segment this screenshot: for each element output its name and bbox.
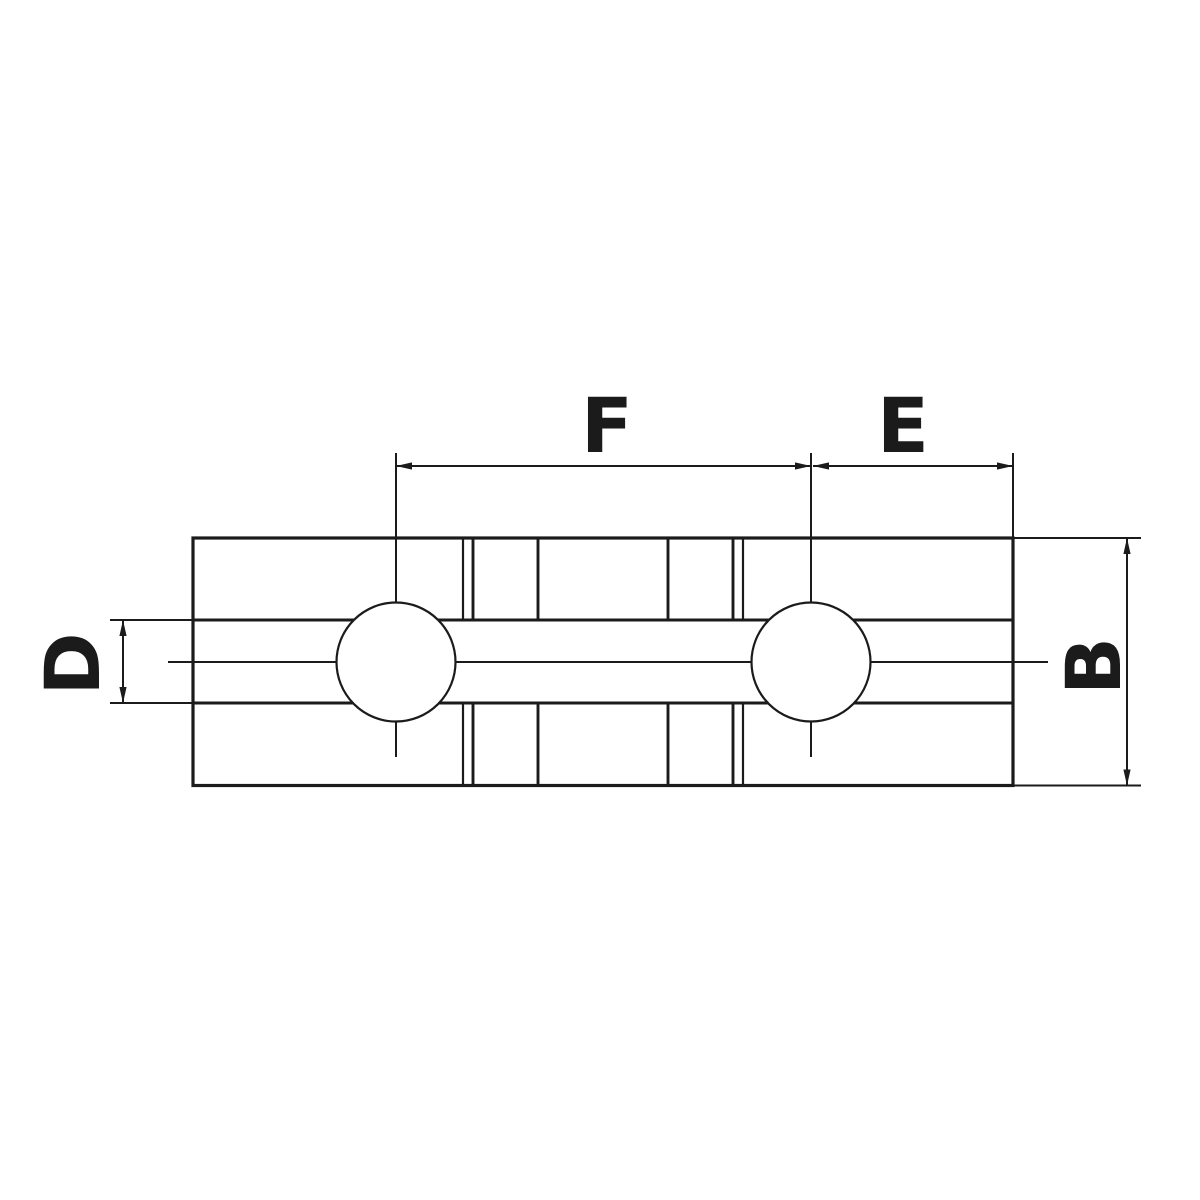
arrowhead-down-icon	[1123, 770, 1130, 786]
arrowhead-up-icon	[1123, 538, 1130, 554]
arrowhead-up-icon	[119, 620, 126, 636]
right-mounting-hole	[752, 603, 871, 722]
arrowhead-right-icon	[997, 462, 1013, 469]
dim-label-b: B	[1049, 637, 1138, 695]
centerlines	[168, 453, 1048, 757]
arrowhead-left-icon	[813, 462, 829, 469]
arrowhead-right-icon	[795, 462, 811, 469]
dim-label-d: D	[28, 632, 117, 695]
soft-jaw-technical-drawing: F E D B	[0, 0, 1200, 1200]
drawing-canvas: F E D B	[0, 0, 1200, 1200]
arrowhead-left-icon	[396, 462, 412, 469]
arrowhead-down-icon	[119, 687, 126, 703]
dim-label-f: F	[581, 381, 633, 470]
dim-label-e: E	[877, 381, 929, 470]
left-mounting-hole	[337, 603, 456, 722]
dimension-d	[119, 620, 126, 703]
